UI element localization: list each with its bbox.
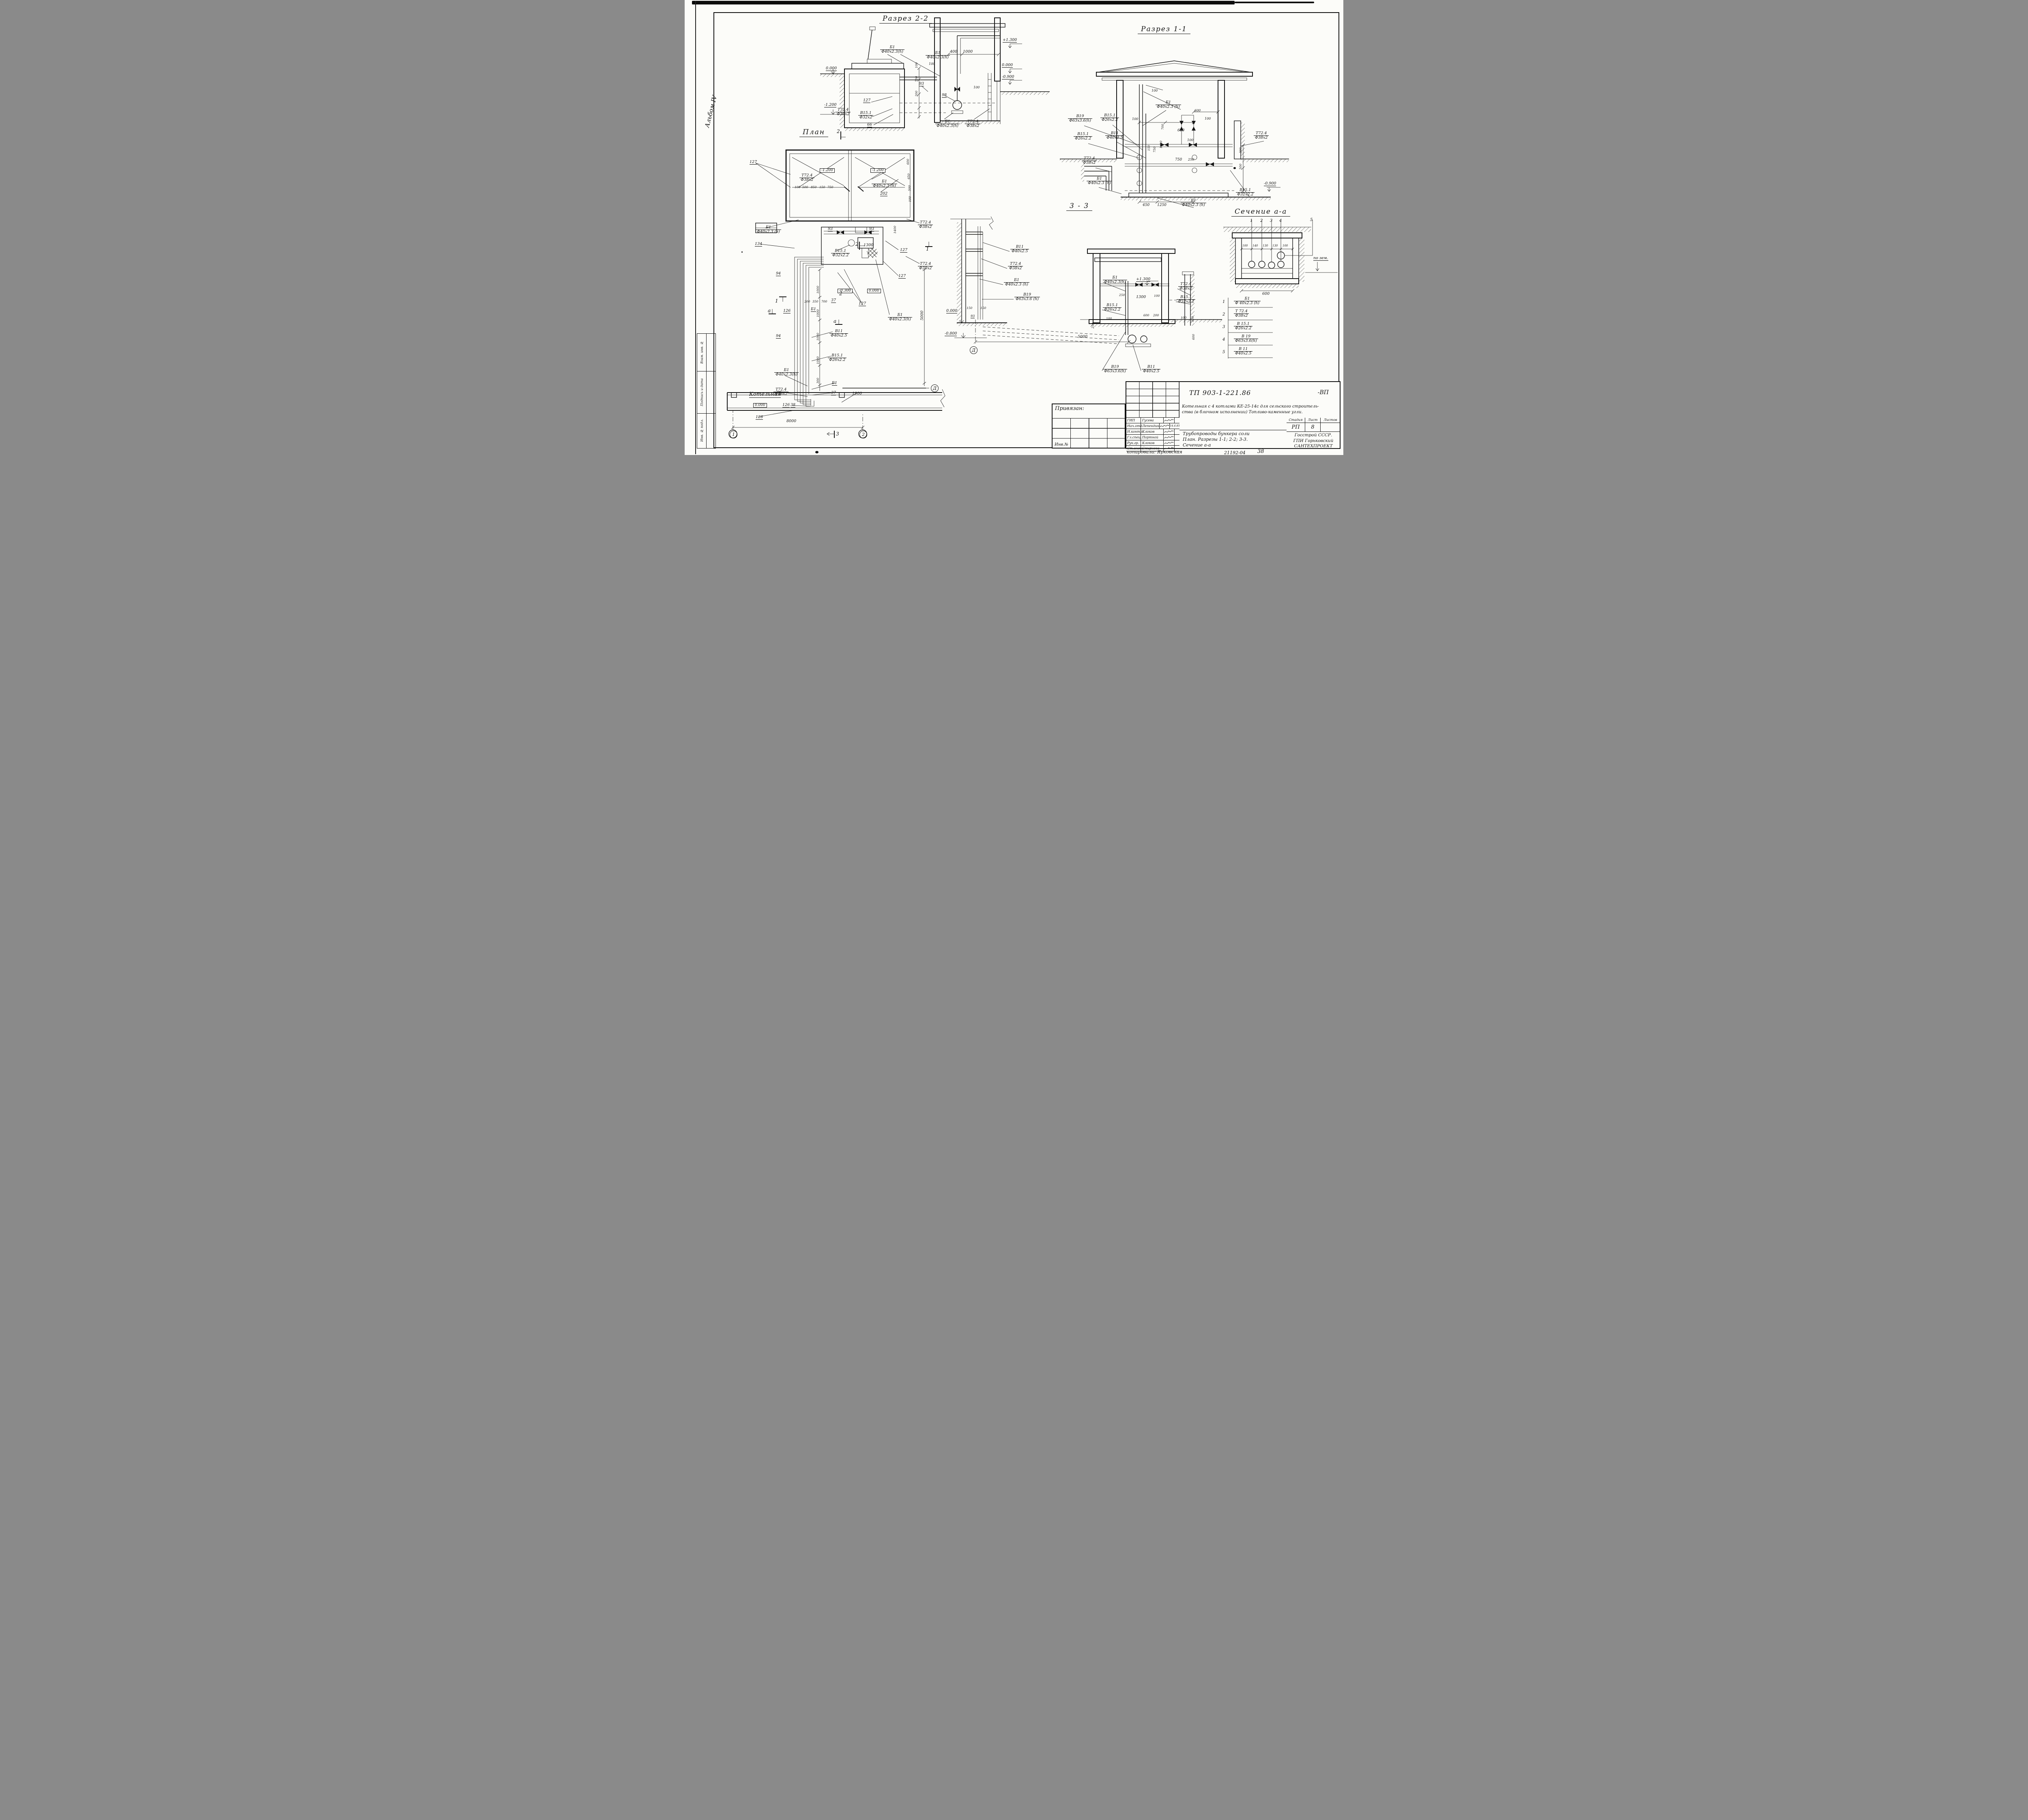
dim-label: 750 bbox=[1153, 147, 1156, 152]
dim-label: 127 bbox=[750, 160, 757, 165]
dim-label: 600 bbox=[1192, 334, 1195, 340]
dim-label: 600 bbox=[1262, 292, 1270, 296]
pipe-spec-label: Т72.4Ф38х2 bbox=[965, 120, 980, 128]
dim-label: 350 bbox=[812, 300, 818, 303]
dim-label: 150 bbox=[819, 186, 825, 189]
dim-label: 100 bbox=[795, 186, 800, 189]
dim-label: 2 bbox=[839, 291, 842, 296]
titleblock-role-row: ГИПГусева bbox=[1126, 418, 1179, 423]
role-title: Гл.спец. bbox=[1126, 435, 1141, 440]
project-description: Котельная с 4 котлами КЕ-25-14с для сель… bbox=[1179, 403, 1340, 418]
side-stamp-cell: Инв. № подл. bbox=[697, 413, 706, 447]
pipe-spec-label: Б1Ф40х2.3 (h) bbox=[756, 225, 781, 234]
axis-mark: Д bbox=[931, 384, 939, 392]
pipe-spec-label: В19Ф63х3.6(h) bbox=[1068, 114, 1092, 123]
signature-squiggle bbox=[1164, 435, 1175, 440]
dim-label: 850 bbox=[811, 186, 816, 189]
signature-rows: ГИПГусеваНач.отд.Лепендин14.4.85Н.контр.… bbox=[1126, 418, 1179, 449]
pipe-spec-label: Т72.4Ф38х2 bbox=[1254, 131, 1269, 140]
pipe-spec-label: Б1Ф40х2.3(h) bbox=[880, 45, 904, 54]
role-title: ГИП bbox=[1126, 418, 1141, 423]
dim-label: 500 bbox=[1239, 164, 1242, 170]
dim-label: 202 bbox=[880, 192, 887, 196]
pipe-spec-label: Б1Ф40х2.3 (h) bbox=[1004, 278, 1029, 287]
pipe-spec-label: В 11Ф40х2.5 bbox=[1234, 347, 1252, 356]
dim-label: 3 bbox=[1222, 325, 1225, 329]
dim-label: 600 bbox=[1177, 129, 1184, 133]
person-name: Лепендин bbox=[1141, 423, 1160, 429]
dim-label: 100 bbox=[973, 86, 980, 89]
dim-label: Б1 bbox=[811, 307, 816, 312]
titleblock-role-row: Гл.спец.Портной bbox=[1126, 435, 1179, 440]
pipe-spec-label: Т72.4Ф38х2 bbox=[1178, 282, 1193, 291]
pipe-spec-label: В19Ф63х3.6(h) bbox=[1103, 365, 1127, 373]
dim-label: 1000 bbox=[963, 50, 973, 54]
dim-label: 1400 bbox=[894, 226, 897, 234]
dim-label: 100 bbox=[915, 62, 918, 68]
pipe-spec-label: В15.1Ф26х2.2 bbox=[1100, 114, 1119, 122]
dim-label: 0.000 bbox=[867, 289, 881, 293]
dim-label: 8000 bbox=[786, 419, 796, 423]
scan-artifact-bar bbox=[692, 1, 1235, 4]
dim-label: 300 bbox=[1191, 316, 1194, 322]
dim-label: -0.900 bbox=[1002, 75, 1014, 79]
dim-label: 1400 bbox=[1160, 141, 1163, 148]
dim-label: 127 bbox=[898, 274, 906, 279]
dim-label: 400 bbox=[950, 50, 957, 54]
view-title-plan: План bbox=[799, 128, 828, 137]
sheet-title-cell: Трубопроводы бункера соли План. Разрезы … bbox=[1179, 418, 1287, 449]
project-description-line: Котельная с 4 котлами КЕ-25-14с для сель… bbox=[1182, 404, 1338, 410]
dim-label: 1 bbox=[1250, 219, 1252, 223]
dim-label: Б1 bbox=[832, 381, 837, 386]
drawing-sheet: Альбом IV bbox=[685, 0, 1343, 455]
dim-label: 2 bbox=[1260, 219, 1263, 223]
pipe-spec-label: В15.1Ф32х2.2 bbox=[831, 249, 850, 258]
view-title-section-2-2: Разрез 2-2 bbox=[879, 15, 932, 24]
dim-label: 1300 bbox=[1136, 295, 1146, 299]
pipe-spec-label: В15.1Ф32х2.2 bbox=[1236, 188, 1255, 197]
dim-label: +1.300 bbox=[1003, 38, 1017, 43]
dim-label: 700 bbox=[1161, 124, 1164, 130]
signature-squiggle bbox=[1164, 429, 1175, 434]
ground-level-note: по зем. bbox=[1313, 256, 1328, 261]
binding-block: Привязан: Инв.№ bbox=[1052, 403, 1126, 449]
dim-label: 5 bbox=[1310, 218, 1313, 222]
pipe-spec-label: Б1Ф 40х2.3 (h) bbox=[1234, 297, 1261, 305]
dim-label: 100 bbox=[1205, 117, 1211, 120]
document-number: ТП 903-1-221.86 bbox=[1189, 389, 1251, 397]
axis-mark: Д bbox=[970, 346, 977, 354]
room-name-label: Котельная bbox=[749, 392, 781, 398]
dim-label: 1900 bbox=[852, 392, 862, 396]
pipe-spec-label: В15.1Ф32х2.2 bbox=[1177, 295, 1195, 304]
dim-label: 0.000 bbox=[753, 403, 767, 408]
pipe-spec-label: Б1Ф40х2.3 (h) bbox=[872, 180, 897, 188]
dim-label: 150 bbox=[967, 307, 972, 310]
pipe-spec-label: В19Ф63х3.6 (h) bbox=[1014, 293, 1040, 301]
scan-speck bbox=[815, 451, 819, 453]
pipe-spec-label: В15.1Ф32х2 bbox=[858, 111, 873, 120]
dim-label: 1000 bbox=[816, 333, 820, 341]
dim-label: 100 bbox=[1151, 89, 1158, 92]
pipe-spec-label: Т72.4Ф38х2 bbox=[918, 262, 933, 270]
section-3-3-linework bbox=[942, 198, 1226, 385]
scan-artifact-bar bbox=[1235, 2, 1314, 3]
dim-label: 1000 bbox=[816, 286, 820, 294]
dim-label: 37 bbox=[831, 391, 836, 395]
dim-label: 140 bbox=[1252, 245, 1258, 247]
dim-label: 5000 bbox=[920, 311, 924, 320]
dim-label: 100 bbox=[1181, 316, 1186, 320]
sheet-edge-line bbox=[695, 1, 696, 454]
page-number: 38 bbox=[1257, 449, 1264, 455]
view-section-a-a: Сечение а-а 12345100140130130100600по зе… bbox=[1220, 208, 1342, 361]
dim-label: 150 bbox=[1147, 145, 1151, 151]
dim-label: 98 bbox=[942, 93, 947, 98]
dim-label: 300 bbox=[816, 378, 820, 384]
dim-label: 3 bbox=[1270, 219, 1272, 223]
signature-squiggle bbox=[1164, 418, 1175, 423]
side-stamp-cell: Подпись и дата bbox=[697, 371, 706, 414]
dim-label: 126 bbox=[782, 403, 790, 408]
dim-label: 134 bbox=[755, 242, 762, 247]
dim-label: 250 bbox=[1091, 323, 1095, 328]
organization-line: САНТЕХПРОЕКТ bbox=[1287, 444, 1340, 449]
view-plan: План 127Т72.4Ф38х2100500850150750-1.200-… bbox=[715, 127, 954, 441]
dim-label: 2 bbox=[1222, 313, 1225, 317]
pipe-spec-label: В11Ф40х2.5 bbox=[1142, 365, 1160, 373]
role-title: Н.контр. bbox=[1126, 429, 1141, 434]
pipe-spec-label: В15.1Ф26х2.2 bbox=[1074, 132, 1092, 141]
dim-label: 500 bbox=[908, 185, 911, 191]
pipe-spec-label: В11Ф40х2.5 bbox=[1010, 245, 1029, 253]
role-title: Рук.гр. bbox=[1126, 440, 1141, 446]
dim-label: 127 bbox=[863, 99, 870, 103]
dim-label: 126 bbox=[783, 309, 791, 313]
pipe-spec-label: В15.1Ф26х2.2 bbox=[828, 354, 846, 362]
dim-label: 1 bbox=[926, 247, 929, 251]
inventory-number-label: Инв.№ bbox=[1055, 442, 1068, 447]
pipe-spec-label: Т72.4Ф38х2 bbox=[836, 108, 851, 116]
person-name: Клоков bbox=[1141, 429, 1164, 434]
dim-label: 150 bbox=[980, 307, 986, 310]
document-suffix: -ВП bbox=[1318, 389, 1329, 396]
stage-org-cell: Стадия Лист Листов РП 8 Госстрой СССР. Г… bbox=[1287, 418, 1340, 449]
view-title-section-a-a: Сечение а-а bbox=[1231, 208, 1290, 217]
dim-label: 93 bbox=[971, 315, 975, 318]
dim-label: 128 bbox=[756, 415, 763, 420]
binding-label: Привязан: bbox=[1055, 406, 1084, 412]
dim-label: 93 bbox=[919, 82, 924, 86]
dim-label: 100 bbox=[1242, 245, 1248, 247]
dim-label: а bbox=[768, 308, 771, 313]
revision-grid bbox=[1126, 382, 1179, 418]
pipe-spec-label: Б1Ф40х2.3 (h) bbox=[1087, 177, 1112, 185]
dim-label: 100 bbox=[1187, 139, 1193, 142]
dim-label: 750 bbox=[1175, 158, 1182, 162]
dim-label: 37 bbox=[831, 298, 836, 303]
sheets-count bbox=[1321, 423, 1340, 431]
person-name: Гусева bbox=[1141, 418, 1164, 423]
side-stamp: Взам. инв. № Подпись и дата Инв. № подл. bbox=[697, 333, 716, 449]
copied-by-note: копировала: Ярковская bbox=[1127, 449, 1182, 455]
axis-mark: 1 bbox=[730, 431, 737, 438]
dim-label: 100 bbox=[929, 62, 935, 66]
titleblock-role-row: Нач.отд.Лепендин14.4.85 bbox=[1126, 423, 1179, 429]
view-title-section-3-3: 3 - 3 bbox=[1066, 202, 1092, 211]
dim-label: -1.200 bbox=[870, 168, 885, 173]
dim-label: 1000 bbox=[816, 309, 820, 317]
section-1-1-linework bbox=[1060, 24, 1289, 214]
dim-label: 0.000 bbox=[826, 67, 837, 71]
sheets-header: Листов bbox=[1321, 418, 1340, 423]
signature-squiggle bbox=[1160, 423, 1170, 429]
stage-value: РП bbox=[1287, 423, 1305, 431]
dim-label: 250 bbox=[1188, 158, 1194, 161]
dim-label: 130 bbox=[1272, 245, 1278, 247]
pipe-spec-label: Т72.4Ф38х2 bbox=[1082, 157, 1097, 165]
dim-label: -1.200 bbox=[820, 168, 835, 173]
organization-line: ГПИ Горьковский bbox=[1287, 438, 1340, 444]
axis-mark: 2 bbox=[859, 431, 867, 438]
dim-label: 750 bbox=[827, 186, 833, 189]
dim-label: 600 bbox=[1143, 314, 1149, 317]
project-description-line: ства (в блочном исполнении) Топливо-каме… bbox=[1182, 410, 1338, 415]
dim-label: 100 bbox=[1283, 245, 1288, 247]
view-section-1-1: Разрез 1-1 Б1Ф40х2.3 (h)1007006001006001… bbox=[1060, 24, 1289, 214]
person-name: Клоков bbox=[1141, 440, 1164, 446]
pipe-spec-label: В11Ф40х2.5 bbox=[1105, 131, 1124, 140]
pipe-spec-label: В15.1Ф26х2.2 bbox=[1103, 303, 1121, 312]
dim-label: 93 bbox=[828, 227, 833, 232]
view-section-3-3: 3 - 3 В11Ф40х2.5Т72.4Ф38х2Б1Ф40х2.3 (h)В… bbox=[942, 198, 1226, 385]
view-title-section-1-1: Разрез 1-1 bbox=[1138, 25, 1190, 34]
blueprint-page: Альбом IV bbox=[685, 0, 1343, 455]
dim-label: 2 bbox=[855, 242, 859, 247]
dim-label: 4 bbox=[1279, 219, 1282, 223]
dim-label: 1300 bbox=[864, 243, 873, 247]
dim-label: 200 bbox=[804, 300, 810, 303]
dim-label: 250 bbox=[1119, 294, 1125, 297]
dim-label: -0.800 bbox=[945, 332, 957, 336]
pipe-spec-label: Б1Ф40х2.3(h) bbox=[926, 51, 950, 60]
dim-label: 100 bbox=[1132, 118, 1138, 121]
dim-label: 127 bbox=[900, 248, 907, 253]
organization-line: Госстрой СССР. bbox=[1287, 433, 1340, 438]
document-number-cell: ТП 903-1-221.86 -ВП bbox=[1179, 382, 1340, 403]
pipe-spec-label: Б1Ф40х2.3(h) bbox=[888, 313, 912, 322]
dim-label: 700 bbox=[915, 76, 918, 82]
signature-date: 14.4.85 bbox=[1170, 424, 1180, 427]
dim-label: +1.300 bbox=[1136, 277, 1150, 282]
dim-label: 0.000 bbox=[946, 309, 957, 313]
stage-header: Стадия bbox=[1287, 418, 1305, 423]
titleblock-role-row: Рук.гр.Клоков bbox=[1126, 440, 1179, 446]
dim-label: 200 bbox=[1153, 314, 1159, 317]
dim-label: 100 bbox=[1106, 317, 1112, 320]
dim-label: 100 bbox=[909, 196, 912, 202]
pipe-spec-label: Б1Ф40х2.3(h) bbox=[774, 368, 799, 377]
signature-squiggle bbox=[1164, 440, 1175, 446]
pipe-spec-label: В11Ф40х2.5 bbox=[829, 329, 848, 338]
pipe-spec-label: Т72.4Ф38х2 bbox=[799, 174, 814, 182]
pipe-spec-label: В 15.1Ф26х2.2 bbox=[1234, 322, 1252, 331]
dim-label: 1 bbox=[1222, 300, 1225, 304]
dim-label: 94 bbox=[776, 272, 781, 276]
dim-label: 93 bbox=[869, 227, 874, 232]
view-section-2-2: Разрез 2-2 Б1Ф40х2.3(h)Б1Ф40х2.3(h)40010… bbox=[819, 12, 1051, 134]
dim-label: -1.200 bbox=[824, 103, 836, 107]
section-2-2-linework bbox=[819, 12, 1051, 134]
pipe-spec-label: Т72.4Ф38х2 bbox=[1008, 262, 1023, 270]
dim-label: -0.900 bbox=[1264, 182, 1276, 186]
archive-code: 21192-04 bbox=[1224, 450, 1246, 455]
dim-label: а bbox=[834, 319, 836, 324]
pipe-spec-label: Б1Ф40х2.3 (h) bbox=[1156, 101, 1181, 109]
dim-label: 500 bbox=[802, 186, 808, 189]
dim-label: 1000 bbox=[816, 356, 820, 364]
sheet-title-line: План. Разрезы 1-1; 2-2; 3-3. bbox=[1183, 437, 1283, 442]
dim-label: 0.000 bbox=[1002, 63, 1013, 68]
dim-label: 127 bbox=[859, 302, 866, 306]
sheet-title-line: Трубопроводы бункера соли bbox=[1183, 431, 1283, 437]
dim-label: 300 bbox=[1239, 148, 1242, 153]
dim-label: 200 bbox=[915, 91, 918, 97]
sheet-number: 8 bbox=[1305, 423, 1321, 431]
dim-label: 700 bbox=[821, 300, 827, 303]
dim-label: 3 bbox=[836, 431, 839, 436]
sheet-header: Лист bbox=[1305, 418, 1321, 423]
sheet-title-line: Сечение а-а bbox=[1183, 442, 1283, 448]
title-block: ТП 903-1-221.86 -ВП Котельная с 4 котлам… bbox=[1126, 381, 1341, 449]
pipe-spec-label: Т 72.4Ф38х2 bbox=[1234, 309, 1249, 318]
dim-label: 5000 bbox=[1078, 335, 1087, 339]
dim-label: 38 bbox=[791, 403, 795, 408]
dim-label: 1 bbox=[775, 298, 778, 303]
pipe-spec-label: В 19Ф63х3.6(h) bbox=[1234, 335, 1258, 343]
role-title: Нач.отд. bbox=[1126, 423, 1141, 429]
dim-label: 100 bbox=[1154, 294, 1160, 298]
dim-label: 130 bbox=[1263, 245, 1268, 247]
titleblock-role-row: Н.контр.Клоков bbox=[1126, 429, 1179, 435]
dim-label: 94 bbox=[776, 334, 781, 339]
dim-label: 600 bbox=[907, 159, 910, 165]
side-stamp-cell: Взам. инв. № bbox=[697, 334, 706, 371]
dim-label: 4 bbox=[1222, 338, 1225, 342]
dim-label: 2 bbox=[837, 129, 840, 134]
empty-cell bbox=[1179, 418, 1287, 430]
dim-label: 5 bbox=[1222, 350, 1225, 354]
person-name: Портной bbox=[1141, 435, 1164, 440]
pipe-spec-label: Б1Ф40х2.3(h) bbox=[1103, 276, 1127, 284]
dim-label: 600 bbox=[1194, 109, 1201, 112]
dim-label: 650 bbox=[907, 174, 911, 179]
pipe-spec-label: Т72.4Ф38х2 bbox=[918, 221, 933, 229]
